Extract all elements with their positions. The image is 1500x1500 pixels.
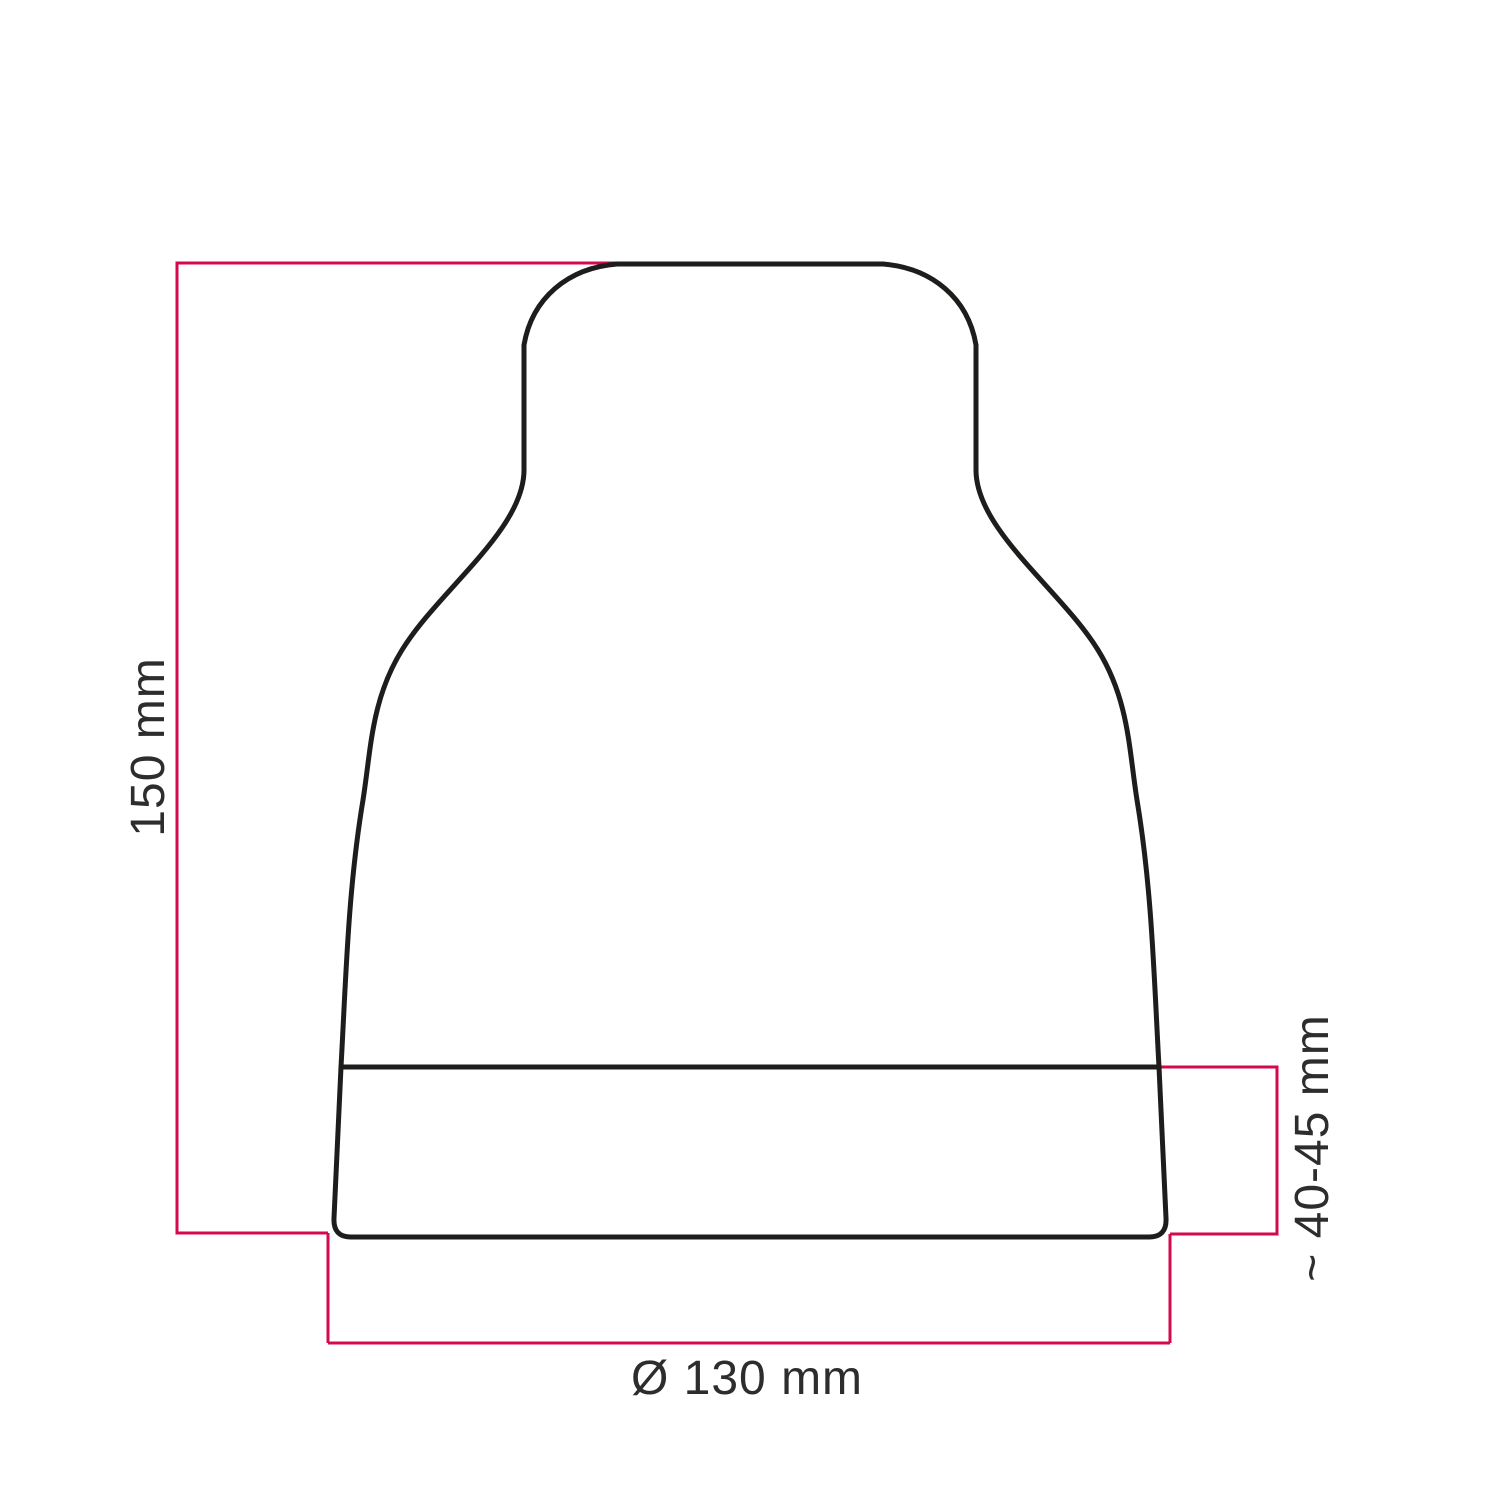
height-dimension-bracket	[177, 263, 617, 1233]
band-height-label: ~ 40-45 mm	[1289, 1014, 1337, 1281]
lampshade-outline	[334, 264, 1166, 1237]
band-dimension-bracket	[1161, 1067, 1277, 1234]
dimension-diagram: 150 mm ~ 40-45 mm Ø 130 mm	[0, 0, 1500, 1500]
diagram-canvas	[0, 0, 1500, 1500]
diameter-label: Ø 130 mm	[631, 1355, 863, 1403]
height-label: 150 mm	[125, 657, 173, 836]
